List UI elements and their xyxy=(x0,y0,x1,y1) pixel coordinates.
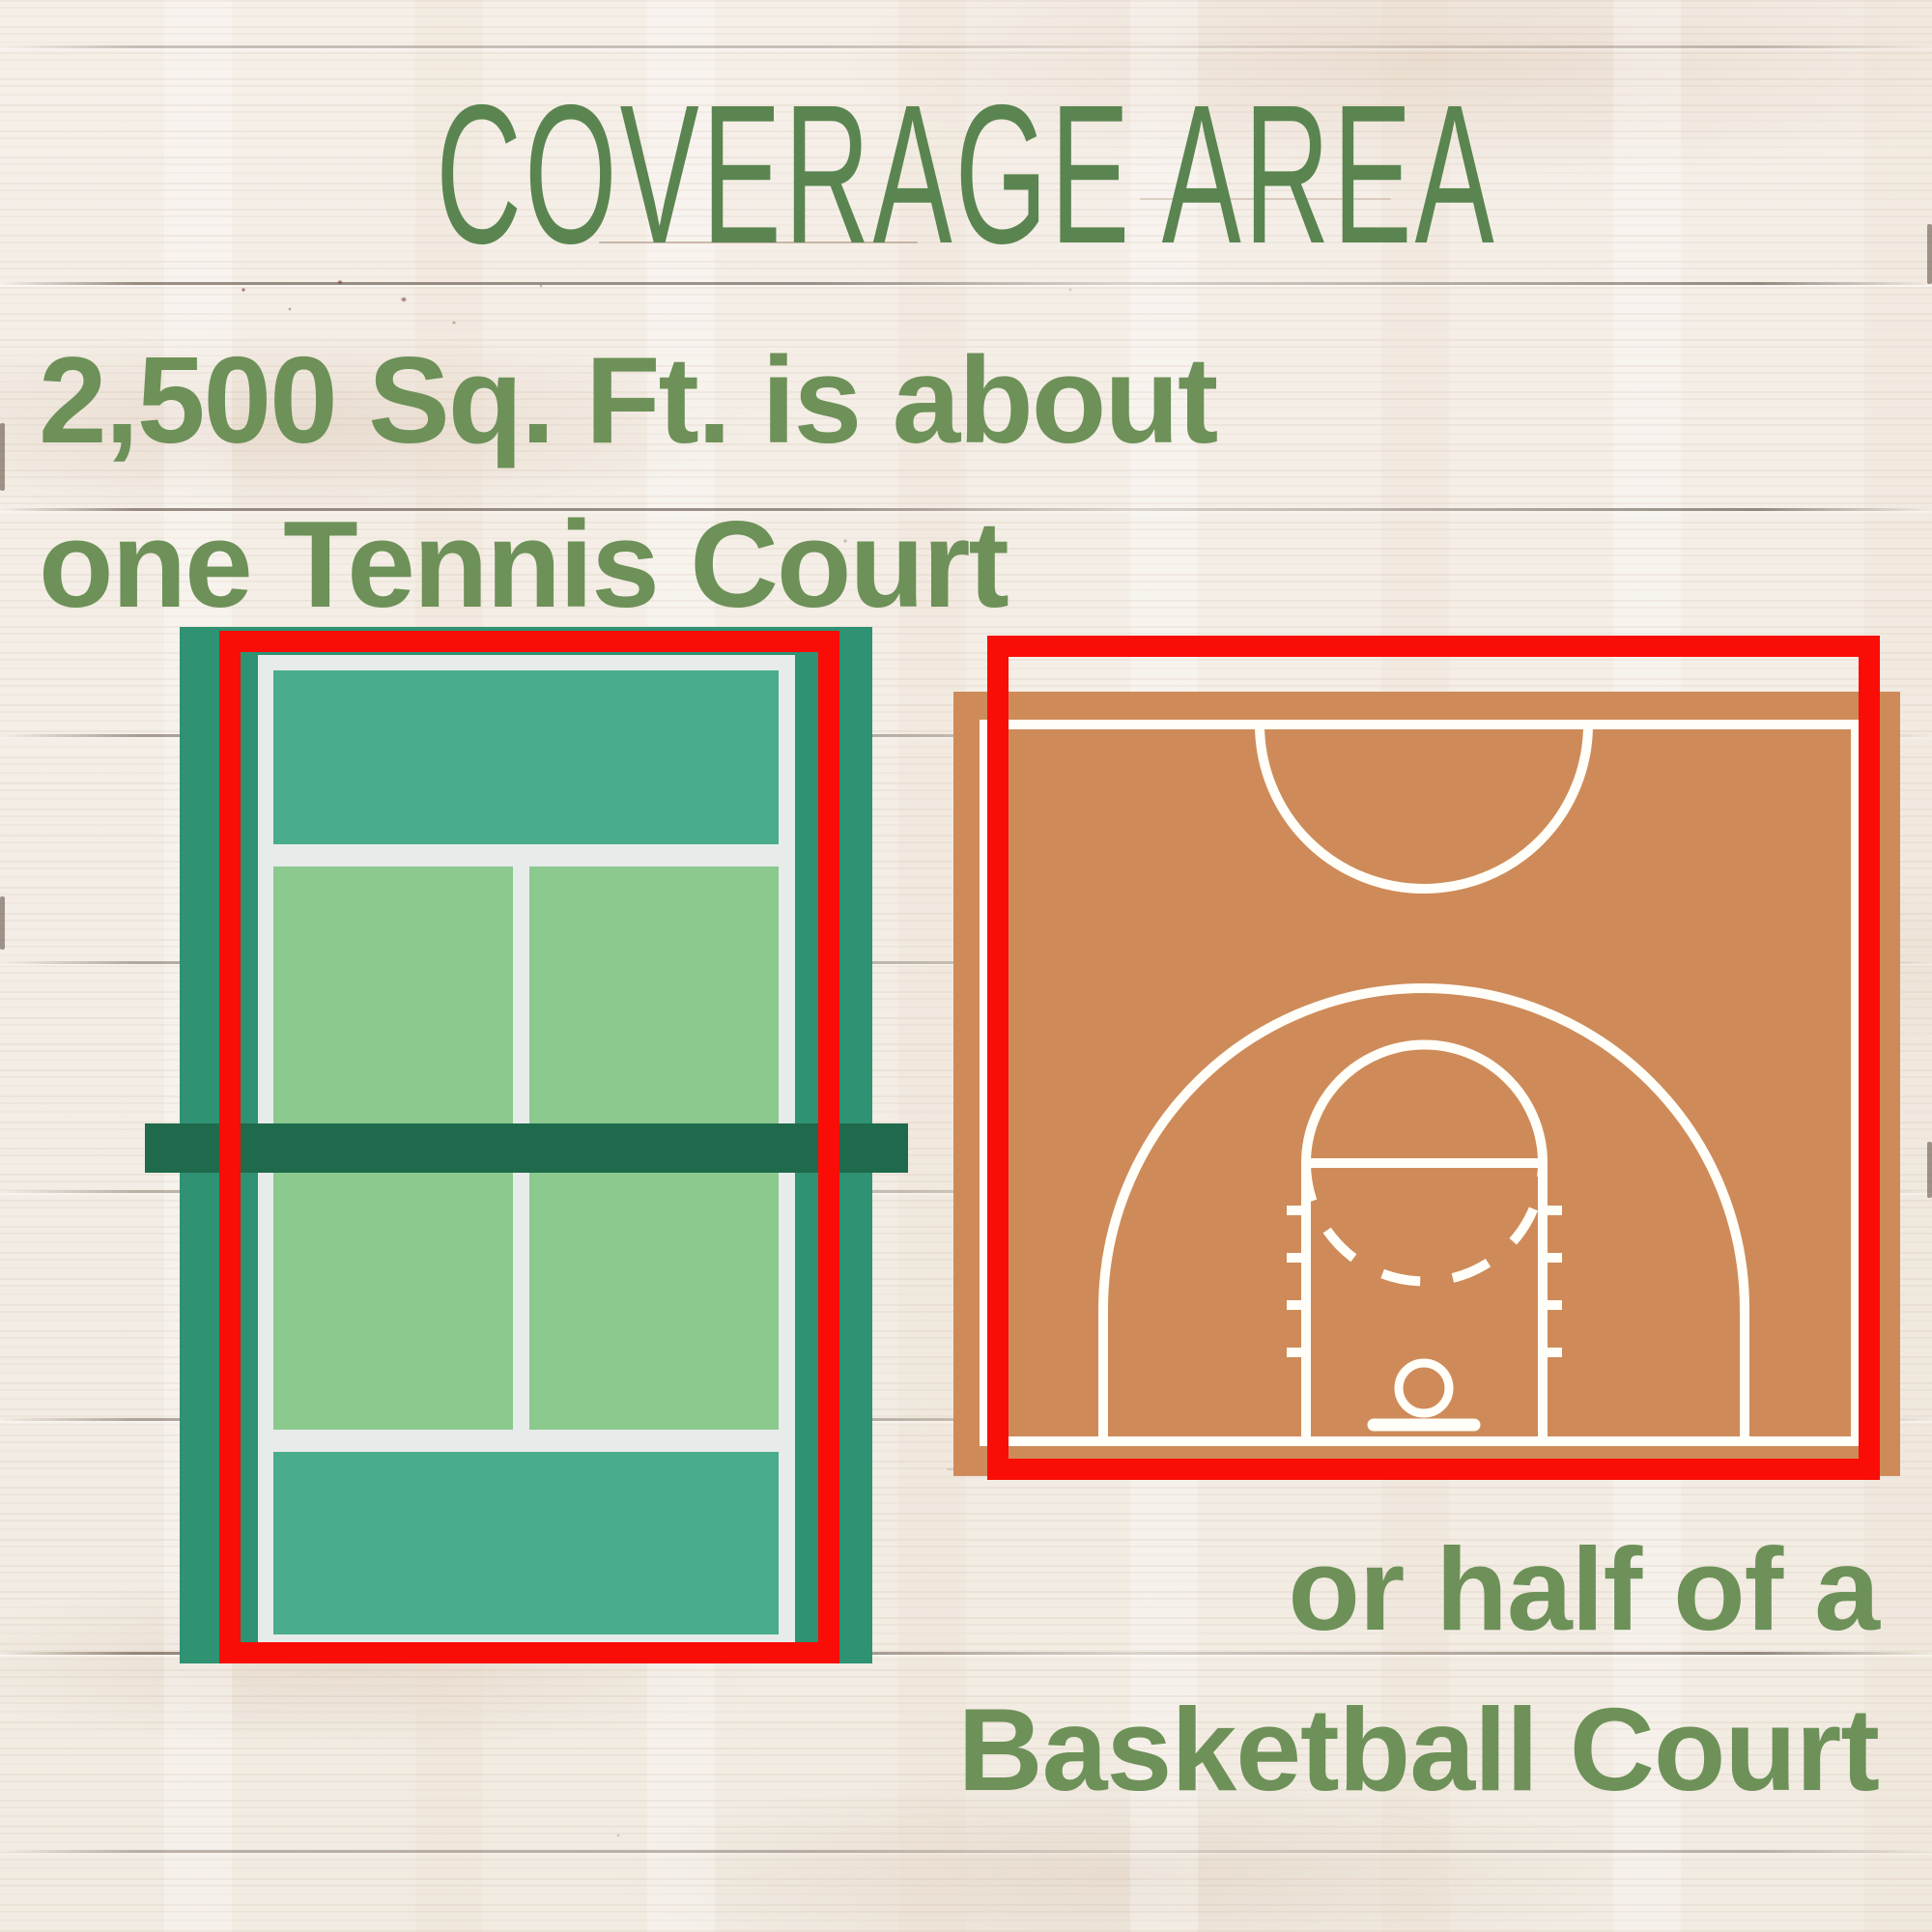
page-title-text: COVERAGE AREA xyxy=(436,75,1496,273)
subtitle-text: 2,500 Sq. Ft. is about one Tennis Court xyxy=(39,318,1216,646)
page-title: COVERAGE AREA xyxy=(0,75,1932,273)
basketball-court-figure xyxy=(947,618,1913,1488)
basketball-floor xyxy=(953,692,1900,1476)
caption-line-1: or half of a xyxy=(958,1509,1879,1669)
tennis-court-figure xyxy=(135,618,927,1671)
tennis-court-illustration xyxy=(135,618,927,1671)
tennis-backcourt-bottom xyxy=(273,1452,779,1634)
caption-line-2: Basketball Court xyxy=(958,1669,1879,1830)
infographic-canvas: COVERAGE AREA 2,500 Sq. Ft. is about one… xyxy=(0,0,1932,1932)
caption-text: or half of a Basketball Court xyxy=(958,1509,1879,1830)
subtitle-line-1: 2,500 Sq. Ft. is about xyxy=(39,318,1216,482)
basketball-court-illustration xyxy=(947,618,1913,1488)
tennis-backcourt-top xyxy=(273,670,779,844)
tennis-net xyxy=(145,1123,908,1173)
